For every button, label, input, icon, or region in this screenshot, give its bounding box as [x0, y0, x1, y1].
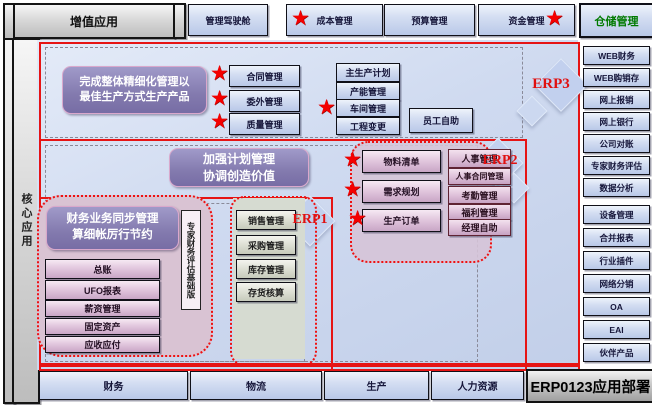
module-outsourcing-management[interactable]: 委外管理: [229, 90, 300, 112]
module-capacity-management[interactable]: 产能管理: [336, 82, 400, 100]
core-apps-bar: 核心应用: [12, 38, 40, 404]
sidebar-item-consolidated-reports[interactable]: 合并报表: [583, 228, 650, 247]
module-contract-management[interactable]: 合同管理: [229, 65, 300, 87]
bottom-tab-finance[interactable]: 财务: [39, 371, 188, 400]
module-label: 质量管理: [246, 118, 282, 131]
planning-callout: 加强计划管理 协调创造价值: [169, 148, 309, 187]
module-fixed-assets[interactable]: 固定资产: [45, 318, 160, 335]
callout-line: 加强计划管理: [203, 151, 275, 167]
module-label: 库存管理: [248, 263, 284, 276]
sidebar-item-account-reconciliation[interactable]: 公司对账: [583, 134, 650, 153]
callout-line: 算细帐厉行节约: [72, 228, 153, 244]
module-general-ledger[interactable]: 总账: [45, 259, 160, 279]
sidebar-item-online-expense[interactable]: 网上报销: [583, 90, 650, 109]
module-stock-accounting[interactable]: 存货核算: [236, 282, 296, 302]
module-label: 委外管理: [246, 95, 282, 108]
star-icon: ★: [317, 97, 336, 118]
star-icon: ★: [343, 149, 362, 170]
module-master-production-schedule[interactable]: 主生产计划: [336, 63, 400, 82]
sidebar-item-label: 网上银行: [599, 116, 633, 128]
module-label: 总账: [93, 263, 111, 276]
module-bill-of-materials[interactable]: 物料清单: [362, 150, 441, 173]
production-goal-callout: 完成整体精细化管理以 最佳生产方式生产产品: [62, 66, 207, 114]
erp3-zone-label: ERP3: [528, 74, 574, 94]
finance-callout: 财务业务同步管理 算细帐厉行节约: [46, 206, 179, 250]
star-icon: ★: [210, 63, 229, 84]
sidebar-item-equipment-management[interactable]: 设备管理: [583, 205, 650, 224]
sidebar-item-network-distribution[interactable]: 网络分销: [583, 274, 650, 293]
top-button-budget-management[interactable]: 预算管理: [384, 4, 475, 36]
sidebar-item-web-finance[interactable]: WEB财务: [583, 46, 650, 65]
sidebar-item-label: 数据分析: [599, 182, 633, 194]
star-icon: ★: [210, 111, 229, 132]
bottom-tab-label: 财务: [104, 378, 124, 393]
expert-edition-box: 专家财务评估基础版: [181, 210, 201, 310]
star-icon: ★: [291, 8, 310, 29]
module-manager-self-service[interactable]: 经理自助: [448, 219, 511, 236]
module-production-order[interactable]: 生产订单: [362, 209, 441, 232]
top-button-label: 预算管理: [411, 14, 447, 27]
callout-line: 协调创造价值: [203, 168, 275, 184]
callout-line: 财务业务同步管理: [67, 212, 159, 228]
module-label: 销售管理: [248, 214, 284, 227]
star-icon: ★: [210, 88, 229, 109]
module-label: 主生产计划: [345, 66, 390, 79]
sidebar-item-label: WEB购销存: [594, 72, 639, 84]
sidebar-item-online-banking[interactable]: 网上银行: [583, 112, 650, 131]
sidebar-item-data-analysis[interactable]: 数据分析: [583, 178, 650, 197]
module-label: 生产订单: [383, 214, 419, 227]
bottom-tab-production[interactable]: 生产: [324, 371, 429, 400]
module-purchase-management[interactable]: 采购管理: [236, 235, 296, 255]
erp2-zone-label: ERP2: [477, 152, 523, 170]
module-label: 固定资产: [84, 320, 120, 333]
sidebar-item-label: 设备管理: [599, 209, 633, 221]
module-demand-planning[interactable]: 需求规划: [362, 180, 441, 203]
star-icon: ★: [545, 8, 564, 29]
bottom-tab-label: 生产: [367, 378, 387, 393]
module-label: 人事合同管理: [456, 171, 504, 182]
module-welfare-management[interactable]: 福利管理: [448, 204, 511, 220]
sidebar-item-label: 合并报表: [599, 232, 633, 244]
bottom-tab-logistics[interactable]: 物流: [190, 371, 322, 400]
module-label: 存货核算: [248, 286, 284, 299]
sidebar-item-partner-products[interactable]: 伙伴产品: [583, 343, 650, 362]
deployment-title: ERP0123应用部署: [526, 369, 652, 403]
module-payroll-management[interactable]: 薪资管理: [45, 300, 160, 317]
module-label: 物料清单: [383, 155, 419, 168]
module-attendance-management[interactable]: 考勤管理: [448, 186, 511, 204]
module-label: 员工自助: [423, 114, 459, 127]
top-button-label: 管理驾驶舱: [205, 14, 250, 27]
callout-line: 最佳生产方式生产产品: [80, 90, 190, 105]
bottom-tab-human-resources[interactable]: 人力资源: [431, 371, 524, 400]
module-hr-contract-management[interactable]: 人事合同管理: [448, 168, 511, 185]
star-icon: ★: [343, 179, 362, 200]
module-ufo-reports[interactable]: UFO报表: [45, 280, 160, 300]
module-receivables-payables[interactable]: 应收应付: [45, 336, 160, 353]
expert-edition-label: 专家财务评估基础版: [185, 222, 197, 299]
sidebar-item-label: 行业插件: [599, 255, 633, 267]
core-apps-label: 核心应用: [18, 193, 34, 249]
sidebar-item-label: 网上报销: [599, 94, 633, 106]
value-added-apps-label: 增值应用: [70, 13, 118, 30]
top-button-label: 资金管理: [508, 14, 544, 27]
header-spacer-bar: [173, 3, 186, 39]
module-inventory-management[interactable]: 库存管理: [236, 259, 296, 279]
module-label: 合同管理: [246, 70, 282, 83]
bottom-tab-label: 物流: [246, 378, 266, 393]
sidebar-item-label: 网络分销: [599, 278, 633, 290]
top-button-management-cockpit[interactable]: 管理驾驶舱: [188, 4, 268, 36]
top-button-label: 仓储管理: [595, 13, 639, 29]
module-engineering-change[interactable]: 工程变更: [336, 117, 400, 135]
deployment-title-label: ERP0123应用部署: [530, 376, 650, 397]
top-button-warehouse-management[interactable]: 仓储管理: [579, 3, 652, 38]
module-label: 薪资管理: [84, 302, 120, 315]
bottom-tab-label: 人力资源: [458, 378, 498, 393]
module-label: 需求规划: [383, 185, 419, 198]
sidebar-item-eai[interactable]: EAI: [583, 320, 650, 339]
module-label: 应收应付: [84, 338, 120, 351]
module-workshop-management[interactable]: 车间管理: [336, 99, 400, 117]
sidebar-item-industry-plugins[interactable]: 行业插件: [583, 251, 650, 270]
value-added-apps-header: 增值应用: [13, 3, 175, 39]
sidebar-item-expert-financial-evaluation[interactable]: 专家财务评估: [583, 156, 650, 175]
sidebar-item-label: EAI: [609, 325, 623, 335]
module-label: 福利管理: [461, 206, 497, 219]
sidebar-item-label: OA: [610, 302, 623, 312]
module-label: 考勤管理: [461, 189, 497, 202]
sidebar-item-label: 专家财务评估: [591, 160, 642, 172]
module-employee-self-service[interactable]: 员工自助: [409, 108, 473, 133]
erp1-zone-label: ERP1: [287, 211, 333, 229]
module-label: 车间管理: [350, 102, 386, 115]
sidebar-item-web-trading[interactable]: WEB购销存: [583, 68, 650, 87]
module-label: 经理自助: [461, 221, 497, 234]
module-quality-management[interactable]: 质量管理: [229, 113, 300, 135]
sidebar-item-label: 伙伴产品: [599, 347, 633, 359]
module-label: 采购管理: [248, 239, 284, 252]
top-button-label: 成本管理: [316, 14, 352, 27]
module-label: 工程变更: [350, 120, 386, 133]
callout-line: 完成整体精细化管理以: [80, 75, 190, 90]
module-label: 产能管理: [350, 85, 386, 98]
sidebar-item-label: WEB财务: [598, 50, 635, 62]
erp-deployment-diagram: 增值应用 管理驾驶舱 成本管理 ★ 预算管理 资金管理 ★ 仓储管理 核心应用: [0, 0, 652, 405]
sidebar-item-label: 公司对账: [599, 138, 633, 150]
module-label: UFO报表: [84, 284, 121, 297]
sidebar-item-oa[interactable]: OA: [583, 297, 650, 316]
star-icon: ★: [348, 208, 367, 229]
